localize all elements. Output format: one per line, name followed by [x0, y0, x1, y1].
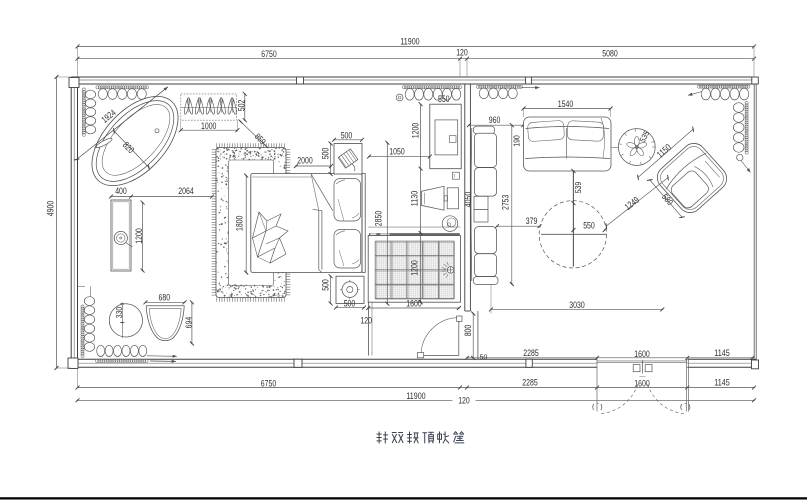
svg-text:6750: 6750 [261, 378, 276, 388]
svg-text:1145: 1145 [714, 378, 729, 388]
svg-text:550: 550 [438, 94, 450, 104]
svg-text:330: 330 [114, 307, 124, 319]
svg-text:120: 120 [360, 315, 372, 325]
svg-text:50: 50 [480, 353, 488, 362]
svg-text:2285: 2285 [522, 378, 537, 388]
svg-text:1600: 1600 [406, 299, 421, 309]
svg-text:500: 500 [321, 279, 331, 291]
svg-text:500: 500 [344, 298, 356, 308]
svg-text:120: 120 [456, 47, 468, 57]
svg-text:6750: 6750 [261, 49, 276, 59]
svg-text:680: 680 [159, 293, 171, 303]
svg-text:1050: 1050 [389, 146, 404, 156]
svg-text:1200: 1200 [134, 228, 144, 243]
svg-text:1800: 1800 [235, 216, 245, 231]
svg-text:2850: 2850 [374, 211, 384, 226]
svg-text:550: 550 [583, 221, 595, 231]
svg-text:4900: 4900 [45, 201, 55, 216]
svg-text:2753: 2753 [501, 195, 511, 210]
svg-text:5080: 5080 [602, 49, 617, 59]
svg-text:4050: 4050 [463, 192, 473, 207]
svg-text:960: 960 [489, 115, 501, 125]
svg-text:2064: 2064 [178, 186, 193, 196]
svg-text:379: 379 [526, 216, 538, 226]
svg-text:1200: 1200 [409, 260, 419, 275]
svg-text:11900: 11900 [406, 391, 425, 401]
svg-text:3030: 3030 [569, 300, 584, 310]
svg-text:2000: 2000 [297, 156, 312, 166]
svg-text:800: 800 [463, 325, 473, 337]
svg-text:1540: 1540 [558, 99, 573, 109]
svg-text:502: 502 [237, 100, 247, 112]
svg-text:539: 539 [573, 182, 583, 194]
svg-text:120: 120 [458, 395, 470, 405]
svg-text:400: 400 [115, 186, 127, 196]
svg-text:694: 694 [184, 317, 194, 329]
svg-text:1145: 1145 [714, 348, 729, 358]
svg-text:2285: 2285 [523, 348, 538, 358]
svg-text:1000: 1000 [201, 121, 216, 131]
svg-text:500: 500 [321, 148, 331, 160]
svg-text:190: 190 [513, 135, 522, 147]
svg-text:11900: 11900 [400, 36, 419, 46]
svg-text:500: 500 [341, 130, 353, 140]
svg-text:1130: 1130 [409, 191, 419, 206]
svg-text:1600: 1600 [634, 349, 649, 359]
svg-text:1200: 1200 [411, 123, 421, 138]
